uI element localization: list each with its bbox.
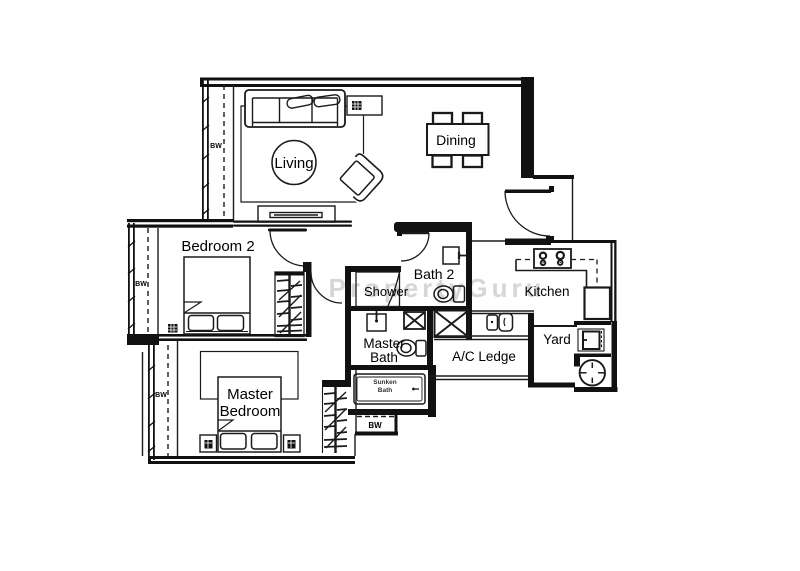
- svg-text:Shower: Shower: [364, 284, 409, 299]
- svg-text:BW: BW: [210, 143, 222, 150]
- svg-text:Bath 2: Bath 2: [414, 266, 455, 282]
- svg-text:BW: BW: [155, 392, 167, 399]
- svg-text:BW: BW: [135, 281, 147, 288]
- svg-text:Bedroom 2: Bedroom 2: [181, 238, 254, 255]
- svg-text:Master: Master: [227, 386, 273, 403]
- svg-text:Bedroom: Bedroom: [220, 403, 281, 420]
- svg-text:Living: Living: [274, 155, 313, 172]
- svg-text:Kitchen: Kitchen: [524, 284, 569, 299]
- svg-text:Bath: Bath: [378, 387, 392, 394]
- svg-text:Yard: Yard: [543, 332, 571, 347]
- svg-text:BW: BW: [368, 421, 382, 430]
- svg-text:Sunken: Sunken: [373, 379, 397, 386]
- svg-text:A/C Ledge: A/C Ledge: [452, 349, 516, 364]
- svg-text:Master: Master: [363, 336, 405, 351]
- svg-text:Bath: Bath: [370, 350, 398, 365]
- svg-text:Dining: Dining: [436, 132, 476, 148]
